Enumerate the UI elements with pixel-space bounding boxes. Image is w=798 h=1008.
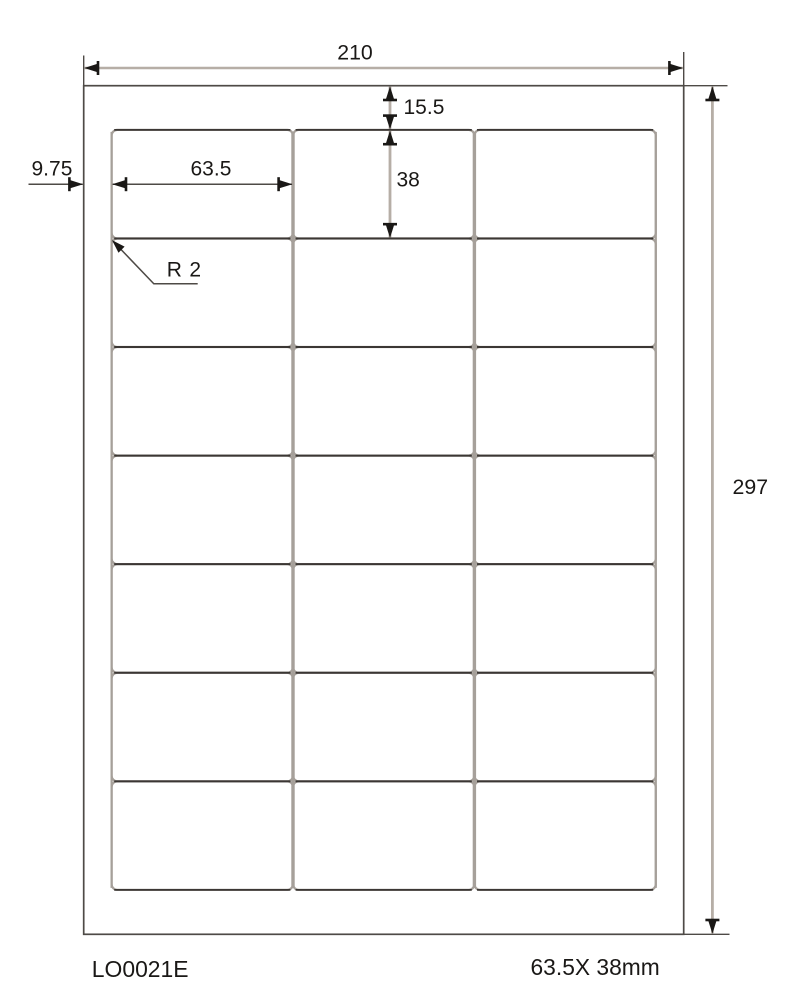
svg-text:297: 297 (733, 475, 769, 499)
svg-text:R 2: R 2 (167, 259, 202, 282)
svg-text:15.5: 15.5 (404, 96, 445, 119)
svg-text:63.5: 63.5 (191, 158, 232, 181)
svg-text:LO0021E: LO0021E (92, 956, 189, 982)
svg-text:210: 210 (337, 41, 373, 65)
svg-text:38: 38 (397, 169, 420, 192)
svg-text:63.5X 38mm: 63.5X 38mm (531, 954, 660, 980)
svg-text:9.75: 9.75 (32, 158, 73, 181)
